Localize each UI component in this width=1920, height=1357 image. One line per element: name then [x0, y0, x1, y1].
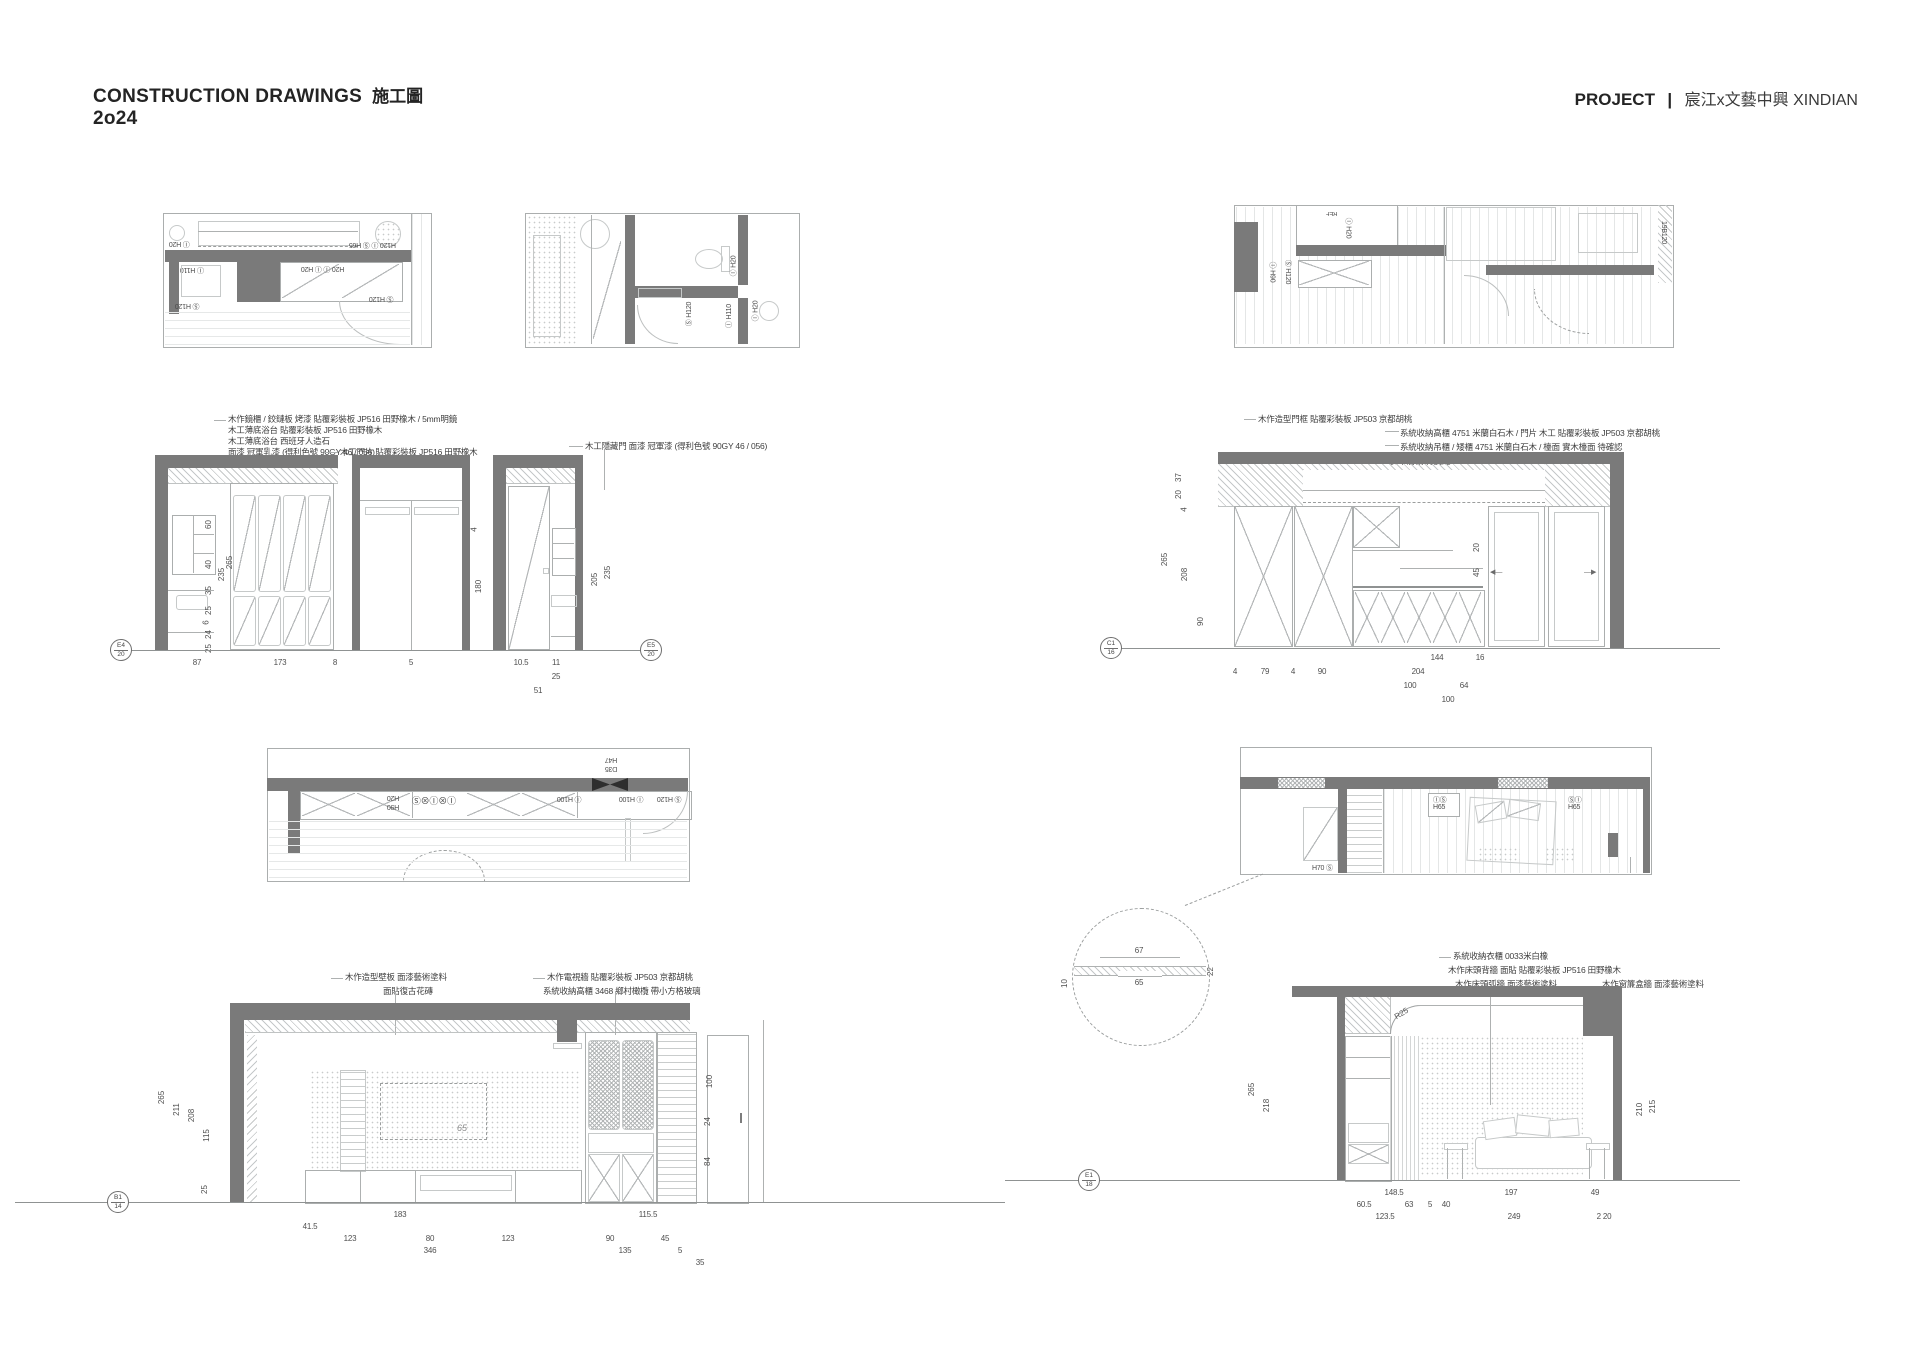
dim: 265 [157, 1091, 166, 1104]
dim: 35 [696, 1258, 705, 1267]
leader-line [324, 452, 338, 453]
floor-boards [165, 305, 410, 345]
panel-door-inner [1554, 512, 1599, 641]
dim: 265 [1247, 1083, 1256, 1096]
glass-line [591, 215, 592, 344]
tv-wall-elevation: 木作造型壁板 面漆藝術塗料 面貼復古花磚 木作電視牆 貼覆彩裝板 JP503 京… [95, 965, 905, 1265]
soffit-hatch [1218, 464, 1303, 507]
plan-label: H65 [1433, 804, 1445, 811]
plan-label: Ⓘ H100 [557, 794, 581, 804]
wood-shelf [1400, 568, 1483, 569]
cabinet-x [467, 793, 520, 816]
project-title: PROJECT | 宸江x文藝中興 XINDIAN [1575, 86, 1858, 110]
ceiling-band [155, 455, 338, 468]
dim: 346 [424, 1246, 437, 1255]
shelf-line [194, 534, 214, 535]
door-panel-low [233, 596, 256, 646]
dim: 2 20 [1597, 1212, 1612, 1221]
sofa-line [198, 231, 358, 232]
hanging-rail [414, 507, 459, 515]
leader-line [533, 978, 545, 979]
dim: 67 [1135, 946, 1144, 955]
ref-bot: 20 [111, 651, 131, 659]
bedroom-plan: H70 Ⓢ ⒾⓈ H65 ⓈⒾ H65 [1240, 747, 1652, 875]
soffit-hatch [506, 468, 575, 484]
dim: 24 [204, 630, 213, 639]
plan-label: Ⓘ H20 [750, 301, 760, 322]
cabinet-x [302, 793, 355, 816]
wall-column [575, 468, 583, 650]
leader-line [214, 420, 226, 421]
soffit-recess-line [1303, 490, 1545, 491]
wall-column [493, 468, 506, 650]
leader-line [569, 446, 583, 447]
plan-label: H20 Ⓘ Ⓘ H20 [301, 264, 344, 274]
annotation: 系統收納衣櫃 0033米白橡 [1453, 950, 1548, 962]
open-shelving [657, 1032, 697, 1204]
ref-bot: 20 [641, 651, 661, 659]
counter [638, 288, 682, 298]
plan-label: H65 [1568, 804, 1580, 811]
dim: 265 [1160, 553, 1169, 566]
pillow [1548, 1118, 1579, 1139]
dim: 123 [344, 1234, 357, 1243]
dim: 235 [217, 568, 226, 581]
wall-column [1610, 464, 1624, 648]
stool-leg [1462, 1148, 1463, 1179]
leader-line [1385, 445, 1399, 446]
ref-top: C1 [1104, 639, 1118, 649]
dim: 5 [1428, 1200, 1432, 1209]
partition [1444, 207, 1445, 344]
dim: 25 [204, 606, 213, 615]
ref-bot: 16 [1101, 649, 1121, 657]
wall-column [1613, 997, 1622, 1180]
base-door [1433, 592, 1457, 643]
dim: 80 [426, 1234, 435, 1243]
hanging-rail [365, 507, 410, 515]
dim: 90 [606, 1234, 615, 1243]
dim: 51 [534, 686, 543, 695]
upper-plan: REF Ⓘ H20 Ⓘ H90 Ⓢ H120 19B120 [1234, 205, 1674, 348]
annotation: 木作造型門框 貼覆彩裝板 JP503 京都胡桃 [1258, 413, 1412, 425]
room-outline [1578, 213, 1638, 253]
drawer-band [588, 1133, 654, 1153]
ref-bot: 18 [1079, 1181, 1099, 1189]
tv-size-label: 65 [457, 1123, 467, 1133]
sofa [198, 221, 360, 246]
slat-panel [1390, 1036, 1420, 1180]
lower-door [588, 1154, 620, 1202]
wall-column [352, 468, 360, 650]
cabinet-divider [193, 515, 194, 573]
dim: 100 [1404, 681, 1417, 690]
door-panel-low [283, 596, 306, 646]
stool-leg [1604, 1148, 1605, 1179]
vent-grille [1278, 778, 1325, 788]
shelf-line [552, 543, 574, 544]
dim: 100 [705, 1075, 714, 1088]
dim: 25 [204, 644, 213, 653]
dim: 210 [1635, 1103, 1644, 1116]
upper-cabinet [1353, 506, 1400, 548]
ref-top: E1 [1082, 1171, 1096, 1181]
closet-shelves [1347, 789, 1382, 873]
leader-drop [604, 450, 605, 490]
dim: 4 [1291, 667, 1295, 676]
rattan-door [622, 1040, 654, 1130]
mirror-cabinet [552, 528, 576, 576]
drawer-x [1348, 1144, 1389, 1164]
dim: 79 [1261, 667, 1270, 676]
tile-strip [247, 1035, 257, 1202]
sofa-front-dashed [198, 246, 358, 247]
drawer [1348, 1123, 1389, 1143]
vanity-elevation: 木作鏡櫃 / 鉸鏈板 烤漆 貼覆彩裝板 JP516 田野橡木 / 5mm明鏡 木… [124, 410, 704, 710]
dim: 20 [1472, 543, 1481, 552]
dim: 5 [678, 1246, 682, 1255]
ceiling-band [1218, 452, 1624, 464]
pillow [1515, 1114, 1551, 1136]
dim: 123.5 [1375, 1212, 1394, 1221]
divider [360, 1170, 361, 1202]
stool-leg [1589, 1148, 1590, 1179]
dim: 208 [1180, 568, 1189, 581]
window-line [1630, 857, 1631, 873]
leader-line [1385, 431, 1399, 432]
closet-door [342, 264, 399, 298]
bedroom-elevation: 67 65 22 10 系統收納衣櫃 0033米白橡 木作床頭背牆 面貼 貼覆彩… [1060, 905, 1740, 1235]
dim: 123 [502, 1234, 515, 1243]
dim: 87 [193, 658, 202, 667]
wall-line [411, 214, 412, 345]
room-outline [1446, 207, 1556, 261]
tall-cabinet-door [1294, 506, 1353, 647]
door-split [411, 500, 412, 650]
leader-line [1244, 419, 1256, 420]
paper-holder-icon [759, 301, 779, 321]
ceiling-line [1418, 1005, 1583, 1006]
panel-door-inner [1494, 512, 1539, 641]
ceiling-band [1292, 986, 1622, 997]
dim: 41.5 [303, 1222, 318, 1231]
dim: 63 [1405, 1200, 1414, 1209]
dim: 249 [1508, 1212, 1521, 1221]
soffit-hatch [1545, 464, 1610, 507]
title-en: CONSTRUCTION DRAWINGS [93, 86, 362, 107]
base-door [1355, 592, 1379, 643]
wall-column [462, 468, 470, 650]
ground-line [15, 1202, 1005, 1203]
plan-label: Ⓘ⊗Ⓘ⊗Ⓢ [412, 794, 456, 807]
dim: 24 [703, 1117, 712, 1126]
shower-bench [533, 235, 561, 337]
base-door [1459, 592, 1481, 643]
wall [165, 250, 411, 262]
wall-column [1643, 789, 1650, 873]
plan-label: Ⓘ H20 [1343, 218, 1353, 239]
dim: 40 [1442, 1200, 1451, 1209]
dim: 4 [1233, 667, 1237, 676]
dim: 60.5 [1357, 1200, 1372, 1209]
arrow-icon: ◀— [1490, 568, 1502, 576]
plan-label: D35 [605, 765, 617, 772]
dim: 144 [1431, 653, 1444, 662]
plan-label: Ⓘ H20 [728, 256, 738, 277]
rug [1545, 847, 1575, 861]
shelf-line [194, 553, 214, 554]
pillar-base [553, 1043, 582, 1049]
dim: 235 [603, 566, 612, 579]
elevation-ref-tag: E118 [1078, 1169, 1100, 1191]
sheet-year: 2o24 [93, 108, 138, 130]
door-panel-low [258, 596, 281, 646]
ceiling-band [352, 455, 470, 468]
door-handle [740, 1113, 742, 1123]
dim: 8 [333, 658, 337, 667]
dim: 11 [552, 658, 560, 667]
ref-top: E5 [644, 641, 658, 651]
annotation: 系統收納高櫃 4751 米蘭白石木 / 門片 木工 貼覆彩裝板 JP503 京都… [1400, 427, 1660, 439]
shelf-line [552, 558, 574, 559]
base-door [1407, 592, 1431, 643]
rug [1478, 847, 1520, 861]
ref-top: E4 [114, 641, 128, 651]
annotation: 面貼復古花磚 [383, 985, 433, 997]
towel-bar [551, 636, 575, 637]
dim: 35 [204, 586, 213, 595]
leader-line [331, 978, 343, 979]
dashed-line [1303, 502, 1545, 503]
cabinet [181, 265, 221, 297]
mirror-panel [1303, 807, 1338, 861]
door-panel [258, 495, 281, 592]
plan-label: Ⓘ H90 [1267, 262, 1277, 283]
dim: 20 [1174, 490, 1183, 499]
dim: 115.5 [639, 1210, 657, 1219]
stool-leg [1447, 1148, 1448, 1179]
dim: 6 [202, 620, 211, 624]
dim: 215 [1648, 1100, 1657, 1113]
door-handle [543, 568, 549, 574]
plan-label: Ⓢ H120 [684, 302, 694, 326]
dim: 22 [1206, 967, 1215, 976]
title-zh: 施工圖 [372, 87, 423, 106]
dim: 148.5 [1384, 1188, 1403, 1197]
plan-label: H90 [387, 803, 399, 810]
detail-bubble [1072, 908, 1210, 1046]
elevation-ref-tag: C116 [1100, 637, 1122, 659]
kitchen-plan: H47 D35 H20 H90 Ⓘ⊗Ⓘ⊗Ⓢ Ⓘ H100 Ⓘ H100 Ⓢ H1… [267, 748, 690, 882]
plan-label: H120 Ⓘ Ⓢ H65 [349, 240, 396, 250]
dim: 180 [474, 580, 483, 593]
base-door [1381, 592, 1405, 643]
ceiling-band [493, 455, 583, 468]
annotation: 木工隱藏門 面漆 冠軍漆 (得利色號 90GY 46 / 056) [585, 440, 767, 452]
kitchen-elevation: 木作造型門框 貼覆彩裝板 JP503 京都胡桃 系統收納高櫃 4751 米蘭白石… [1100, 410, 1730, 720]
soffit-hatch [168, 468, 338, 484]
ladder-shelf [340, 1070, 366, 1172]
shelf-line [1353, 550, 1453, 551]
wall-column [230, 1003, 244, 1202]
plan-label: H20 [387, 794, 399, 801]
dim: 4 [470, 527, 479, 531]
dim: 25 [200, 1185, 209, 1194]
plan-label: Ⓢ H120 [1283, 260, 1293, 284]
dim: 218 [1262, 1099, 1271, 1112]
ground-line [1005, 1180, 1740, 1181]
sheet-title: CONSTRUCTION DRAWINGS施工圖 [93, 82, 423, 108]
dim-line [1100, 957, 1180, 958]
wall-column [155, 468, 168, 650]
soffit-strip [1303, 464, 1545, 470]
drawing-sheet: CONSTRUCTION DRAWINGS施工圖 2o24 PROJECT | … [0, 0, 1920, 1357]
dim: 60 [204, 520, 213, 529]
room-door [707, 1035, 749, 1204]
dim: 100 [1442, 695, 1455, 704]
divider [515, 1170, 516, 1202]
wall-block [237, 262, 280, 302]
wall [1296, 245, 1446, 256]
dim: 84 [703, 1157, 712, 1166]
door-panel [308, 495, 331, 592]
dim: 173 [274, 658, 287, 667]
annotation: 木作造型壁板 面漆藝術塗料 [345, 971, 447, 983]
floor-boards [269, 820, 687, 878]
dim: 205 [590, 573, 599, 586]
dim: 16 [1476, 653, 1485, 662]
dim: 10 [1060, 979, 1069, 988]
dim: 64 [1460, 681, 1469, 690]
annotation: 系統收納高櫃 3468 鄉村橄欖 帶小方格玻璃 [543, 985, 700, 997]
arrow-icon: —▶ [1584, 568, 1596, 576]
wall [738, 215, 748, 285]
lower-door [622, 1154, 654, 1202]
dim: 25 [552, 672, 561, 681]
dim: 208 [187, 1109, 196, 1122]
wall-edge [763, 1020, 764, 1202]
dim: 183 [394, 1210, 407, 1219]
island-x [1299, 261, 1369, 285]
curtain-box-wall [1583, 997, 1613, 1036]
wall [738, 298, 748, 344]
pillar [557, 1020, 577, 1042]
ground-line [1100, 648, 1720, 649]
plan-label: H70 Ⓢ [1312, 863, 1333, 873]
project-name: 宸江x文藝中興 XINDIAN [1685, 92, 1858, 109]
shelf-line [1345, 1057, 1390, 1058]
divider [415, 1170, 416, 1202]
toilet-bowl-icon [695, 249, 723, 269]
dim: 115 [202, 1129, 211, 1142]
soffit-hatch [1345, 997, 1391, 1034]
wall-block [1234, 222, 1258, 292]
ref-top: B1 [111, 1193, 125, 1203]
annotation: 木作電視牆 貼覆彩裝板 JP503 京都胡桃 [547, 971, 693, 983]
ground-line [110, 650, 655, 651]
dim: 10.5 [514, 658, 529, 667]
ref-bot: 14 [108, 1203, 128, 1211]
dim: 90 [1196, 617, 1205, 626]
plan-label: 19B120 [1660, 221, 1667, 244]
plan-label: Ⓘ H20 [169, 239, 190, 249]
wall-column [1337, 997, 1345, 1180]
dim: 135 [619, 1246, 632, 1255]
annotation: 木作床頭背牆 面貼 貼覆彩裝板 JP516 田野橡木 [1448, 964, 1621, 976]
elevation-ref-tag: E420 [110, 639, 132, 661]
plan-label: Ⓘ H110 [724, 304, 734, 328]
door-panel [233, 495, 256, 592]
glass-door [593, 241, 621, 339]
project-separator: | [1667, 90, 1672, 109]
wall [1486, 265, 1654, 275]
shelf-line [1345, 1078, 1390, 1079]
dim: 65 [1135, 978, 1144, 987]
wall [625, 215, 635, 344]
dim: 45 [1472, 568, 1481, 577]
rattan-door [588, 1040, 620, 1130]
dim: 90 [1318, 667, 1327, 676]
vanity-counter [551, 595, 577, 607]
plan-label: Ⓘ H100 [619, 794, 643, 804]
dim: 204 [1412, 667, 1425, 676]
detail-step [1118, 971, 1162, 977]
elevation-ref-tag: B114 [107, 1191, 129, 1213]
ceiling-band [230, 1003, 690, 1020]
elevation-ref-tag: E520 [640, 639, 662, 661]
dim: 265 [225, 556, 234, 569]
detail-leader [1185, 874, 1263, 906]
living-plan: Ⓘ H20 H120 Ⓘ Ⓢ H65 Ⓘ H110 H20 Ⓘ Ⓘ H20 Ⓢ … [163, 213, 432, 348]
vent-grille [1498, 778, 1548, 788]
door-panel [283, 495, 306, 592]
counter-top [1353, 586, 1483, 588]
balcony-stripes [412, 214, 429, 345]
dim: 45 [661, 1234, 670, 1243]
dim: 40 [204, 560, 213, 569]
dim: 37 [1174, 473, 1183, 482]
door-panel-low [308, 596, 331, 646]
av-niche [420, 1175, 512, 1191]
leader-line [1439, 957, 1451, 958]
wall-column [1338, 789, 1347, 873]
dim: 4 [1180, 507, 1189, 511]
dim: 197 [1505, 1188, 1518, 1197]
plan-label: REF [1326, 210, 1337, 216]
bath-plan: Ⓘ H20 Ⓢ H120 Ⓘ H110 Ⓘ H20 [525, 213, 800, 348]
wall-block [1608, 833, 1618, 857]
project-label: PROJECT [1575, 90, 1655, 109]
tv-dashed-outline [380, 1083, 487, 1140]
dim: 49 [1591, 1188, 1600, 1197]
dim: 5 [409, 658, 413, 667]
bed-mattress [1475, 1137, 1592, 1169]
cabinet-x [357, 793, 410, 816]
tall-cabinet-door [1234, 506, 1293, 647]
dim: 211 [172, 1103, 181, 1116]
plan-label: H47 [605, 756, 617, 763]
